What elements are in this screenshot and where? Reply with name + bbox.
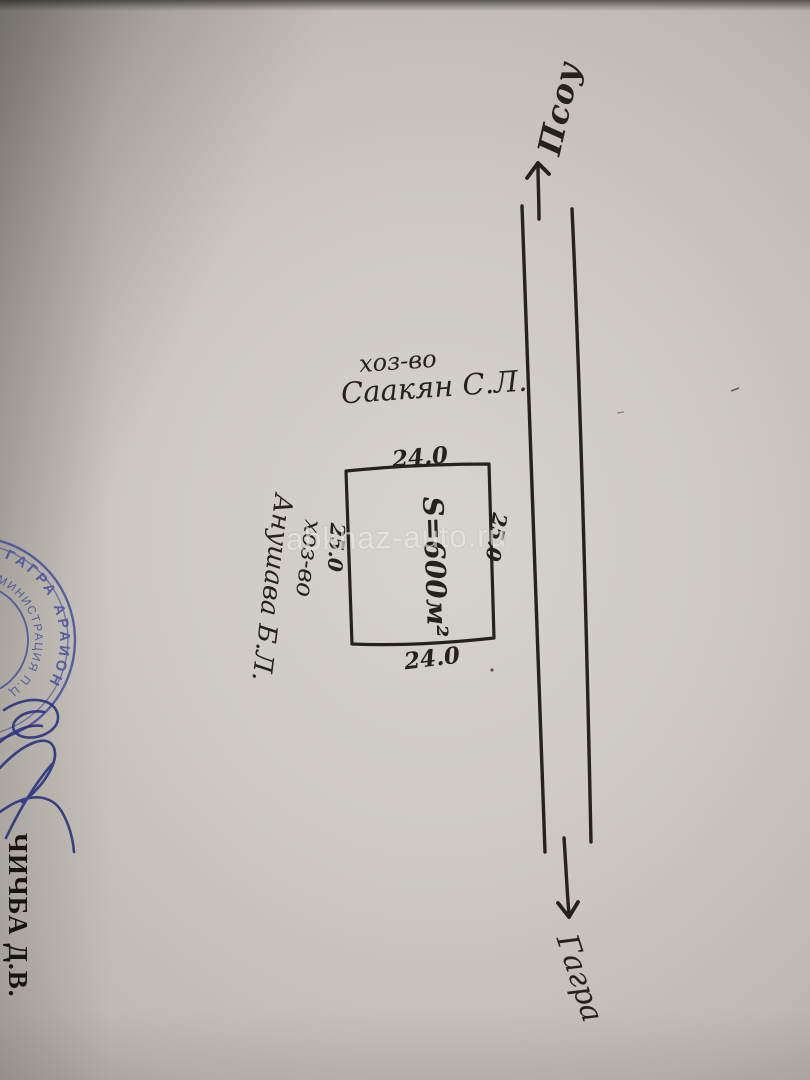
site-watermark: abkhaz-auto.ru (286, 518, 507, 558)
arrow-up-icon (527, 163, 549, 219)
road-line-left (522, 206, 545, 852)
road-lines (522, 206, 591, 852)
official-name: ЧИЧБА Д.В. (2, 833, 33, 997)
arrow-down-icon (558, 838, 578, 917)
road-line-right (572, 209, 591, 842)
dimension-top: 24.0 (391, 442, 449, 474)
pen-specks (490, 388, 739, 672)
plot-area-label: S=600м² (416, 496, 454, 638)
stamp-inner-ring-text: АДМИНИСТРАЦИЯ П.Ц (0, 568, 44, 699)
photographed-land-plot-sketch: ГАГРА АРАИОН АДМИНИСТРАЦИЯ П.Ц Псоу Гагр… (0, 0, 810, 1080)
signature (0, 700, 74, 852)
